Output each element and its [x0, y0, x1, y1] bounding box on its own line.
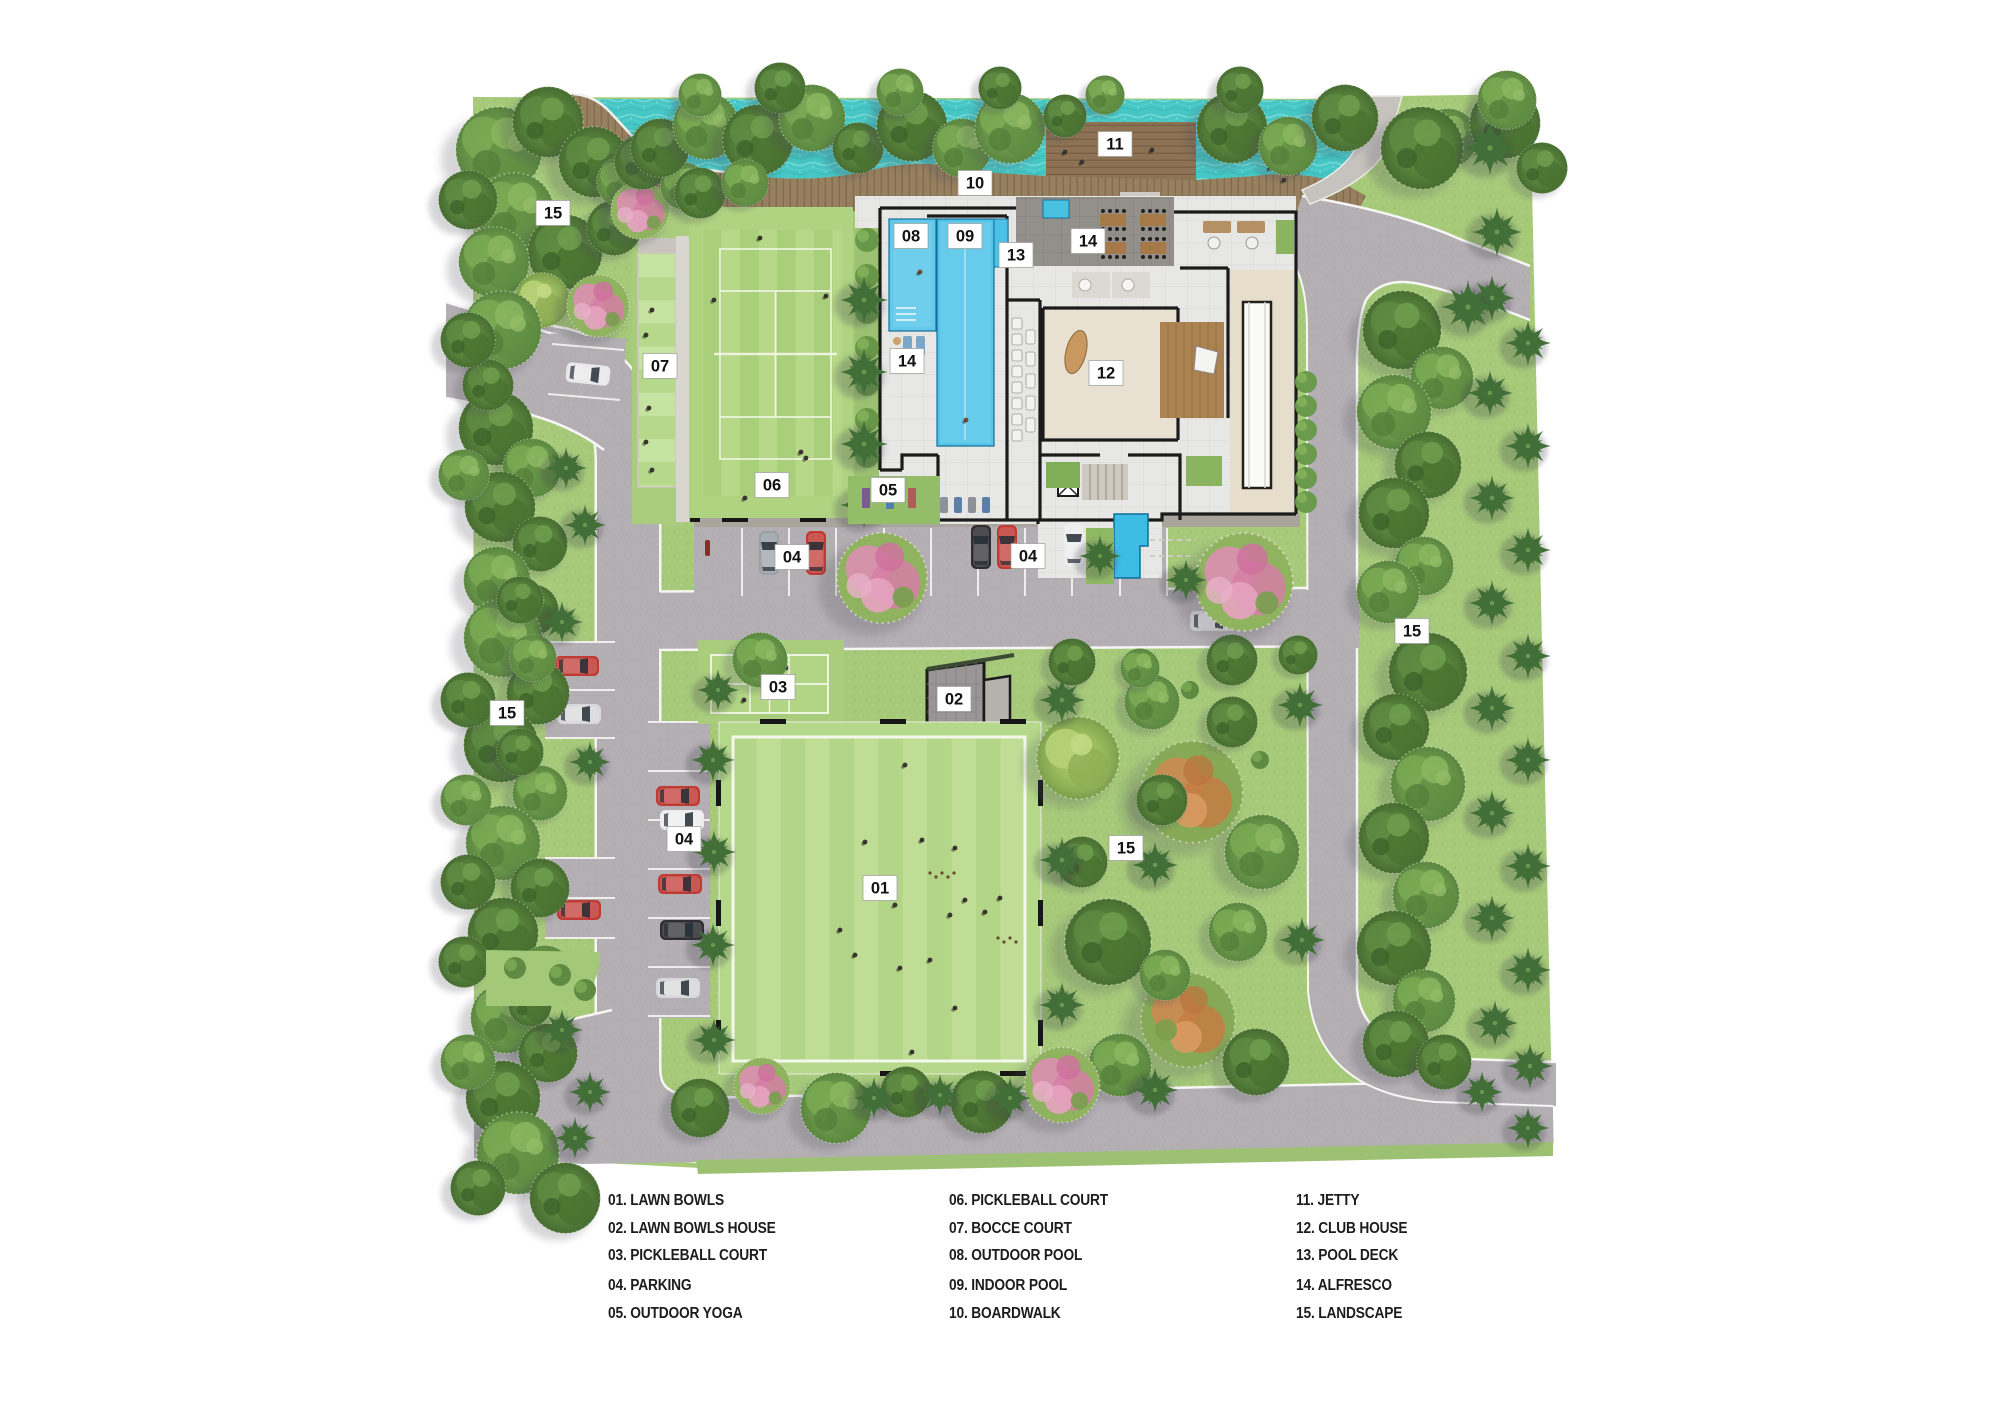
svg-text:10: 10: [966, 175, 984, 193]
svg-text:15. LANDSCAPE: 15. LANDSCAPE: [1296, 1304, 1402, 1322]
svg-text:03. PICKLEBALL COURT: 03. PICKLEBALL COURT: [608, 1246, 767, 1264]
svg-text:13: 13: [1007, 247, 1025, 265]
svg-text:04: 04: [1019, 548, 1038, 566]
svg-text:15: 15: [544, 205, 562, 223]
svg-text:15: 15: [498, 705, 516, 723]
svg-text:06. PICKLEBALL COURT: 06. PICKLEBALL COURT: [949, 1191, 1108, 1209]
svg-text:07. BOCCE COURT: 07. BOCCE COURT: [949, 1219, 1072, 1237]
svg-text:10. BOARDWALK: 10. BOARDWALK: [949, 1304, 1061, 1322]
svg-text:11: 11: [1106, 136, 1123, 154]
svg-text:03: 03: [769, 679, 787, 697]
svg-text:14: 14: [898, 353, 917, 371]
svg-text:12. CLUB HOUSE: 12. CLUB HOUSE: [1296, 1219, 1408, 1237]
svg-text:01: 01: [871, 880, 889, 898]
svg-text:02. LAWN BOWLS HOUSE: 02. LAWN BOWLS HOUSE: [608, 1219, 776, 1237]
svg-text:11. JETTY: 11. JETTY: [1296, 1191, 1360, 1209]
svg-text:12: 12: [1097, 365, 1115, 383]
svg-text:02: 02: [945, 691, 963, 709]
svg-text:15: 15: [1403, 623, 1421, 641]
svg-text:08: 08: [902, 228, 920, 246]
svg-text:04. PARKING: 04. PARKING: [608, 1276, 691, 1294]
svg-text:09. INDOOR POOL: 09. INDOOR POOL: [949, 1276, 1067, 1294]
svg-text:04: 04: [783, 549, 802, 567]
svg-text:14. ALFRESCO: 14. ALFRESCO: [1296, 1276, 1392, 1294]
svg-text:05. OUTDOOR YOGA: 05. OUTDOOR YOGA: [608, 1304, 743, 1322]
svg-text:07: 07: [651, 358, 669, 376]
svg-text:09: 09: [956, 228, 974, 246]
svg-text:05: 05: [879, 482, 897, 500]
svg-text:06: 06: [763, 477, 781, 495]
svg-text:01. LAWN BOWLS: 01. LAWN BOWLS: [608, 1191, 724, 1209]
svg-text:14: 14: [1079, 233, 1098, 251]
svg-text:08. OUTDOOR POOL: 08. OUTDOOR POOL: [949, 1246, 1082, 1264]
svg-text:13. POOL DECK: 13. POOL DECK: [1296, 1246, 1399, 1264]
svg-text:04: 04: [675, 831, 694, 849]
svg-text:15: 15: [1117, 840, 1135, 858]
